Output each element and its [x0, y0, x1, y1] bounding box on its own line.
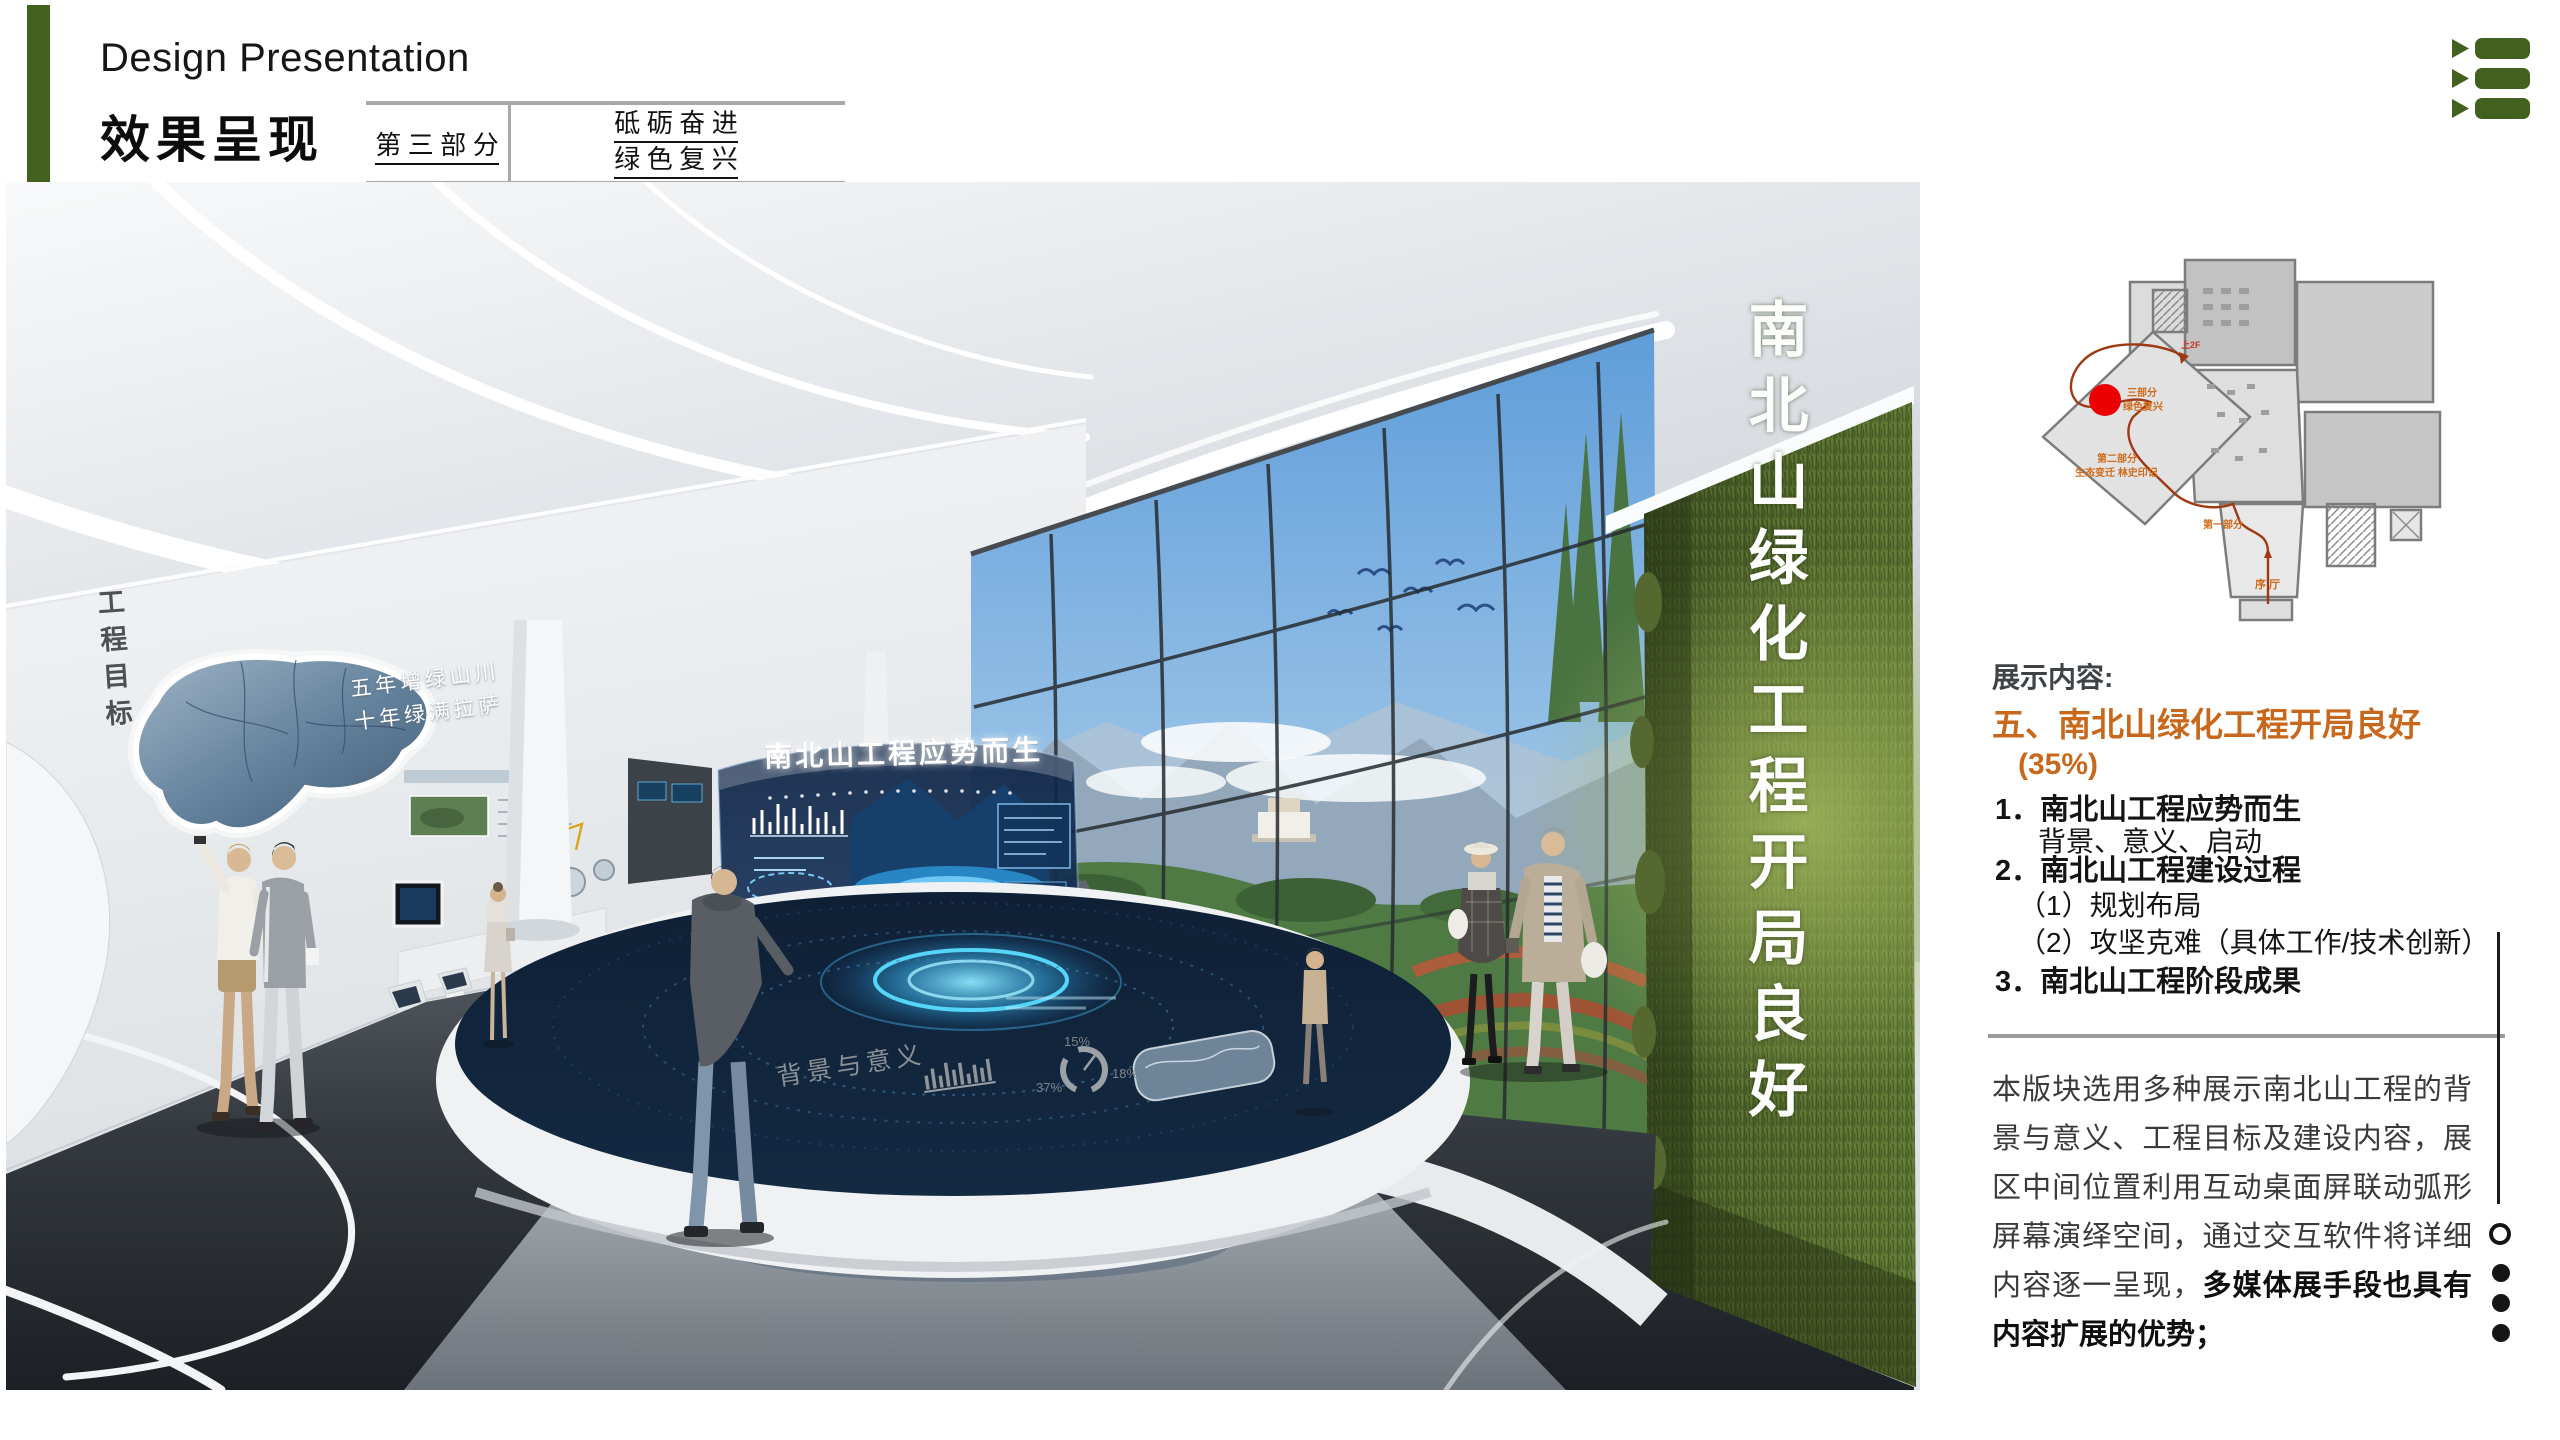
content-item-3: 3．南北山工程阶段成果: [1995, 958, 2301, 1000]
content-item-2-sub2: （2）攻坚克难（具体工作/技术创新）: [2018, 921, 2489, 961]
menu-list-icon[interactable]: [2452, 34, 2532, 124]
content-item-2: 2．南北山工程建设过程: [1995, 847, 2301, 889]
part-label: 第 三 部 分: [375, 131, 499, 165]
content-heading: 五、南北山绿化工程开局良好: [1992, 698, 2421, 746]
media-cabinet: [628, 758, 712, 884]
plan-label-part2-line2: 生态变迁 林史印记: [2075, 466, 2158, 479]
interactive-table: [436, 882, 1470, 1278]
plan-label-part1: 第一部分: [2203, 518, 2243, 531]
page-dot-3[interactable]: [2492, 1324, 2510, 1342]
part-box-divider: [508, 105, 511, 181]
description-paragraph: 本版块选用多种展示南北山工程的背景与意义、工程目标及建设内容，展区中间位置利用互…: [1992, 1066, 2472, 1360]
section-label: 展示内容:: [1992, 656, 2113, 696]
plan-label-part3-line1: 三部分: [2127, 386, 2157, 399]
plan-label-lobby: 序 厅: [2255, 577, 2280, 591]
content-item-2-sub1: （1）规划布局: [2018, 884, 2202, 924]
plan-label-part3-line2: 绿色复兴: [2123, 400, 2163, 413]
page-marker-current[interactable]: [2489, 1223, 2511, 1245]
slide-subtitle-en: Design Presentation: [100, 36, 470, 81]
pagination-rule: [2497, 932, 2500, 1204]
page-title: 效果呈现: [100, 100, 324, 172]
part-slogan-line2: 绿 色 复 兴: [614, 145, 738, 179]
page-dot-2[interactable]: [2492, 1294, 2510, 1312]
rendering-scene: [6, 182, 1920, 1390]
plan-label-part2-line1: 第二部分: [2097, 452, 2137, 465]
description-text-normal: 本版块选用多种展示南北山工程的背景与意义、工程目标及建设内容，展区中间位置利用互…: [1992, 1074, 2472, 1302]
part-title-box: 第 三 部 分 砥 砺 奋 进 绿 色 复 兴: [366, 101, 845, 185]
section-divider: [1988, 1034, 2505, 1038]
header-accent-bar: [27, 5, 50, 191]
part-slogan-line1: 砥 砺 奋 进: [614, 109, 738, 143]
plan-label-upstairs: 上2F: [2181, 339, 2201, 350]
exhibition-rendering-image: 工程目标 五年增绿山川 十年绿满拉萨 南北山工程应势而生 南北山绿化工程开局良好…: [6, 182, 1920, 1390]
content-heading-percent: (35%): [2018, 748, 2098, 782]
slide: Design Presentation 效果呈现 第 三 部 分 砥 砺 奋 进…: [0, 0, 2560, 1440]
page-dot-1[interactable]: [2492, 1264, 2510, 1282]
current-location-marker: [2089, 384, 2121, 416]
floorplan-thumbnail: 三部分 绿色复兴 第二部分 生态变迁 林史印记 第一部分 序 厅 上2F: [2035, 252, 2457, 630]
